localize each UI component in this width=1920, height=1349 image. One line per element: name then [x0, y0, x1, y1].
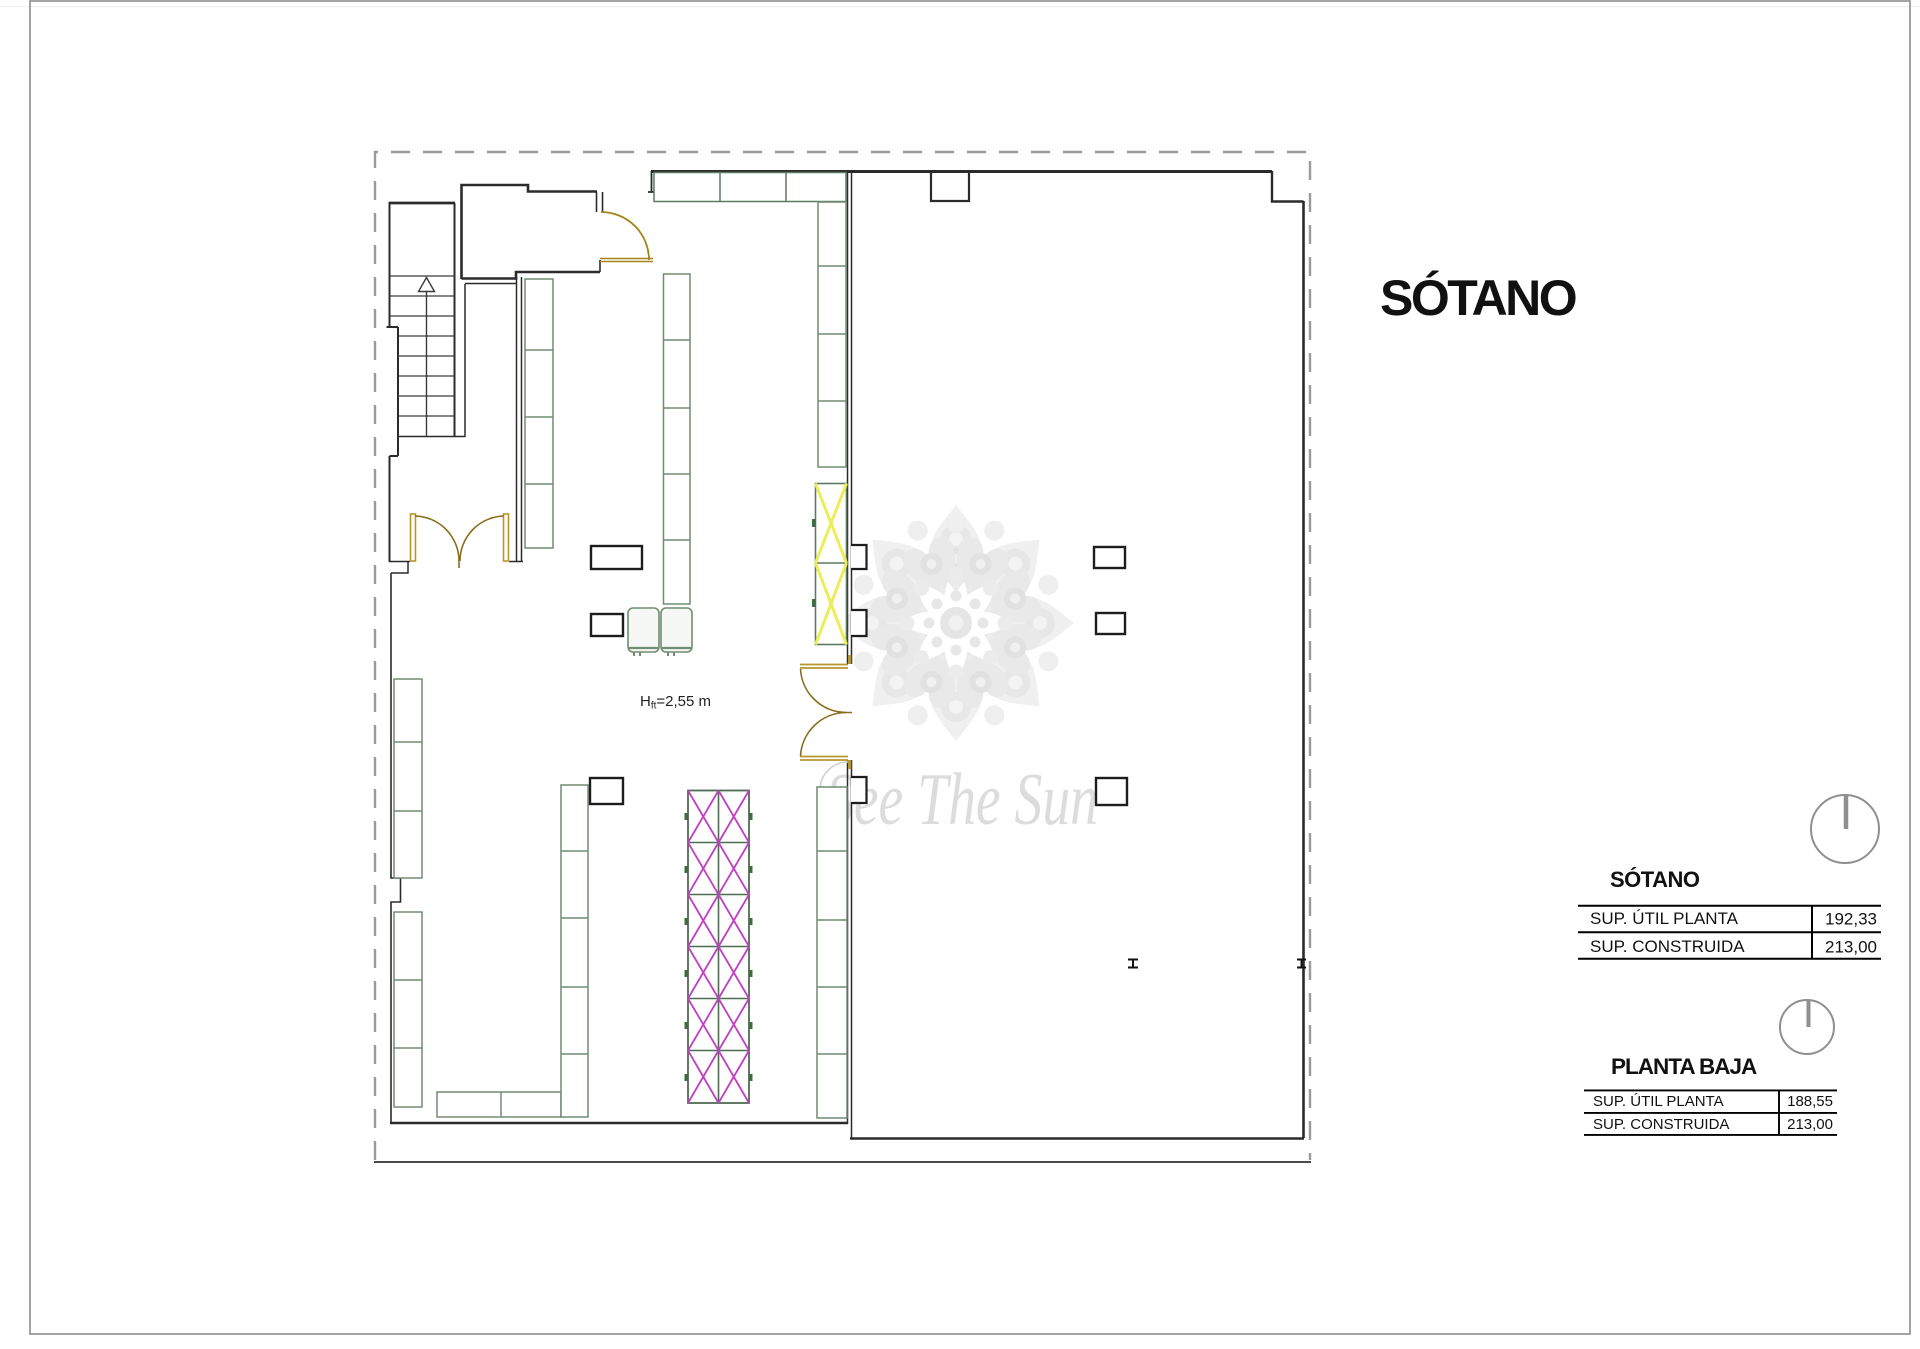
- svg-text:PLANTA BAJA: PLANTA BAJA: [1611, 1054, 1757, 1079]
- svg-text:SUP. ÚTIL PLANTA: SUP. ÚTIL PLANTA: [1593, 1093, 1724, 1110]
- svg-text:SUP. CONSTRUIDA: SUP. CONSTRUIDA: [1590, 937, 1745, 956]
- svg-text:188,55: 188,55: [1787, 1093, 1833, 1110]
- svg-text:SUP. CONSTRUIDA: SUP. CONSTRUIDA: [1593, 1116, 1729, 1133]
- svg-text:SÓTANO: SÓTANO: [1610, 867, 1700, 892]
- svg-text:213,00: 213,00: [1825, 938, 1877, 957]
- svg-text:SÓTANO: SÓTANO: [1380, 270, 1576, 326]
- svg-text:SUP. ÚTIL PLANTA: SUP. ÚTIL PLANTA: [1590, 909, 1739, 928]
- svg-text:213,00: 213,00: [1787, 1116, 1833, 1133]
- svg-text:Hft=2,55 m: Hft=2,55 m: [640, 693, 711, 712]
- svg-text:192,33: 192,33: [1825, 910, 1877, 929]
